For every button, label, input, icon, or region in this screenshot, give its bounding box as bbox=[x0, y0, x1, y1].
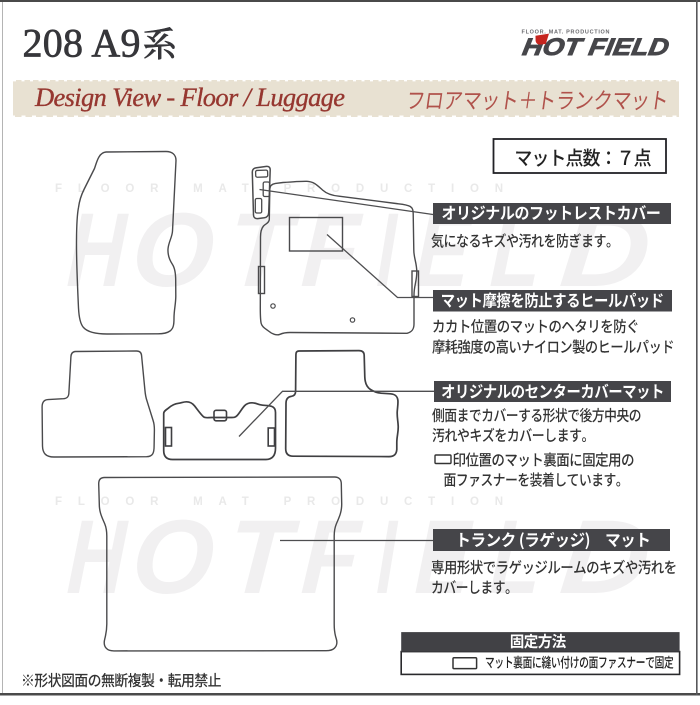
svg-text:208 A9: 208 A9 bbox=[23, 21, 141, 66]
svg-text:O: O bbox=[128, 499, 218, 616]
svg-text:Design View - Floor / Luggage: Design View - Floor / Luggage bbox=[34, 82, 345, 112]
svg-text:H: H bbox=[65, 499, 130, 616]
svg-text:E: E bbox=[413, 498, 475, 616]
svg-text:D: D bbox=[556, 499, 655, 616]
svg-text:F: F bbox=[299, 499, 365, 616]
svg-text:L: L bbox=[488, 498, 544, 615]
svg-text:H: H bbox=[65, 192, 130, 309]
